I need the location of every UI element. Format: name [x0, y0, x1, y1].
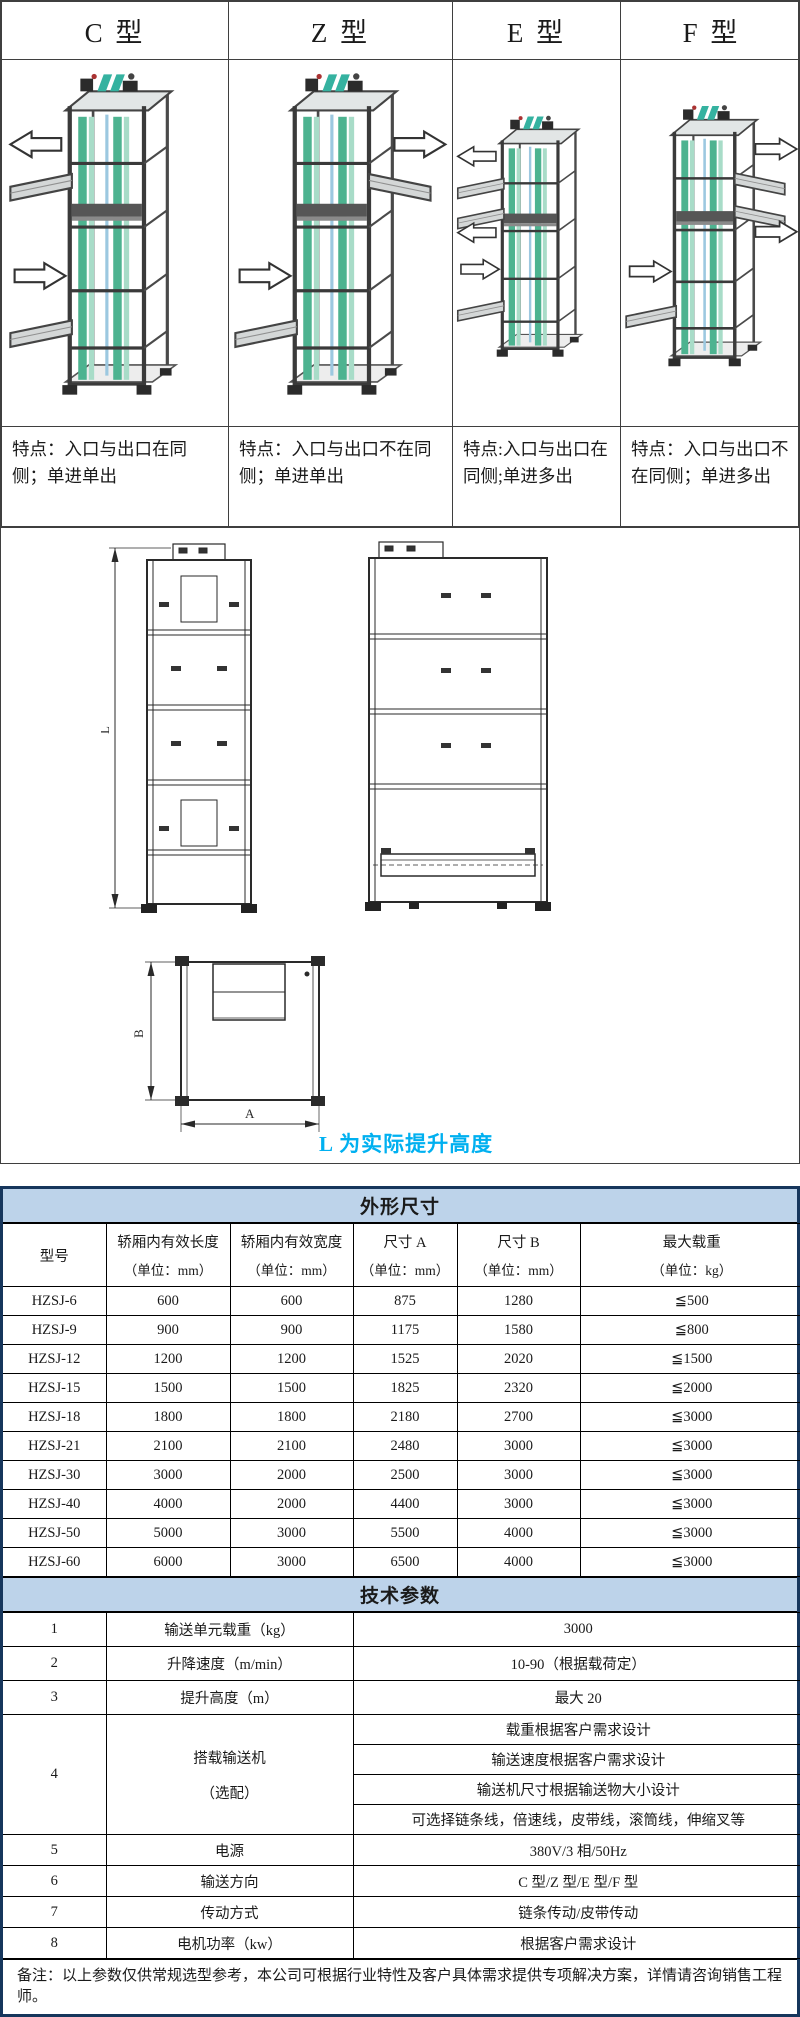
machine-image-cell-f: [621, 60, 800, 427]
type-header-f: F 型: [621, 2, 800, 60]
table-row: 6输送方向C 型/Z 型/E 型/F 型: [3, 1866, 800, 1897]
param-name-cell: 搭载输送机 （选配）: [106, 1715, 353, 1835]
table-row: HZSJ-505000300055004000≦3000: [3, 1519, 800, 1548]
table-row: 2升降速度（m/min）10-90（根据载荷定）: [3, 1647, 800, 1681]
table-row: 8电机功率（kw）根据客户需求设计: [3, 1928, 800, 1959]
table-row: HZSJ-121200120015252020≦1500: [3, 1345, 800, 1374]
feature-text-z: 特点：入口与出口不在同侧；单进单出: [229, 427, 453, 530]
type-label: C 型: [85, 11, 146, 50]
param-no-cell: 4: [3, 1715, 106, 1835]
table-row: HZSJ-990090011751580≦800: [3, 1316, 800, 1345]
machine-illustration-f: [621, 68, 800, 418]
table-row: HZSJ-181800180021802700≦3000: [3, 1403, 800, 1432]
params-table-title: 技术参数: [3, 1577, 797, 1612]
machine-image-cell-z: [229, 60, 453, 427]
footer-note: 备注：以上参数仅供常规选型参考，本公司可根据行业特性及客户具体需求提供专项解决方…: [3, 1959, 797, 2014]
machine-image-cell-e: [453, 60, 621, 427]
type-header-e: E 型: [453, 2, 621, 60]
dim-label-l: L: [101, 726, 112, 734]
machine-illustration-z: [229, 68, 452, 418]
dim-label-a: A: [245, 1106, 255, 1121]
table-row: HZSJ-66006008751280≦500: [3, 1287, 800, 1316]
table-row: HZSJ-606000300065004000≦3000: [3, 1548, 800, 1577]
side-view-drawing: [353, 538, 563, 918]
header-model: 型号: [3, 1224, 106, 1287]
dimensions-table-title: 外形尺寸: [3, 1189, 797, 1223]
table-row: 5电源380V/3 相/50Hz: [3, 1835, 800, 1866]
top-view-drawing: B A: [129, 948, 369, 1144]
machine-illustration-e: [453, 68, 620, 418]
specification-block: 外形尺寸 型号 轿厢内有效长度（单位：mm） 轿厢内有效宽度（单位：mm） 尺寸…: [0, 1186, 800, 2017]
dimension-drawing-section: L: [0, 528, 800, 1164]
table-row: HZSJ-151500150018252320≦2000: [3, 1374, 800, 1403]
dimensions-table: 型号 轿厢内有效长度（单位：mm） 轿厢内有效宽度（单位：mm） 尺寸 A（单位…: [3, 1223, 800, 1577]
table-row: 1输送单元载重（kg）3000: [3, 1613, 800, 1647]
table-row: HZSJ-404000200044003000≦3000: [3, 1490, 800, 1519]
lift-height-note: L 为实际提升高度: [319, 1128, 493, 1158]
type-header-c: C 型: [2, 2, 229, 60]
dimensions-header-row: 型号 轿厢内有效长度（单位：mm） 轿厢内有效宽度（单位：mm） 尺寸 A（单位…: [3, 1224, 800, 1287]
table-row: 4 搭载输送机 （选配） 载重根据客户需求设计: [3, 1715, 800, 1745]
header-length: 轿厢内有效长度（单位：mm）: [106, 1224, 230, 1287]
table-row: 7传动方式链条传动/皮带传动: [3, 1897, 800, 1928]
table-row: HZSJ-212100210024803000≦3000: [3, 1432, 800, 1461]
feature-text-f: 特点：入口与出口不在同侧；单进多出: [621, 427, 800, 530]
type-header-z: Z 型: [229, 2, 453, 60]
header-load: 最大载重（单位：kg）: [580, 1224, 800, 1287]
feature-text-c: 特点：入口与出口在同侧；单进单出: [2, 427, 229, 530]
table-row: 3提升高度（m）最大 20: [3, 1681, 800, 1715]
params-table: 1输送单元载重（kg）3000 2升降速度（m/min）10-90（根据载荷定）…: [3, 1612, 800, 1959]
type-label: E 型: [507, 11, 566, 50]
type-label: F 型: [683, 11, 741, 50]
front-view-drawing: L: [101, 538, 291, 918]
dim-label-b: B: [131, 1029, 146, 1038]
machine-illustration-c: [4, 68, 227, 418]
header-dim-b: 尺寸 B（单位：mm）: [457, 1224, 580, 1287]
header-width: 轿厢内有效宽度（单位：mm）: [230, 1224, 353, 1287]
type-comparison-table: C 型 Z 型 E 型 F 型: [0, 0, 800, 528]
type-label: Z 型: [311, 11, 370, 50]
feature-text-e: 特点:入口与出口在同侧;单进多出: [453, 427, 621, 530]
machine-image-cell-c: [2, 60, 229, 427]
table-row: HZSJ-303000200025003000≦3000: [3, 1461, 800, 1490]
header-dim-a: 尺寸 A（单位：mm）: [353, 1224, 457, 1287]
